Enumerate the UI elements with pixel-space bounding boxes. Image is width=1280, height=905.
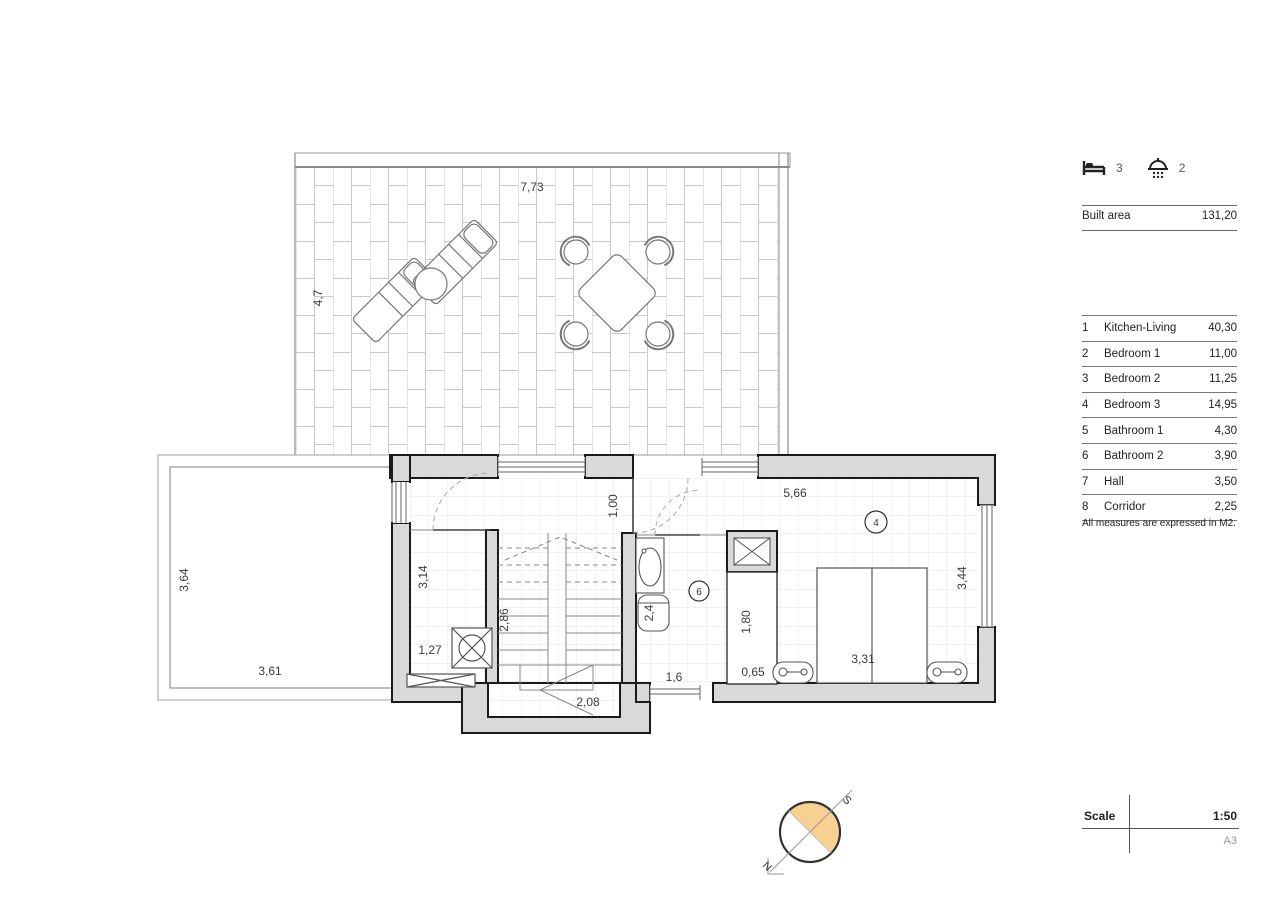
room-area: 40,30 <box>1208 322 1237 334</box>
dim-utility-depth: 3,14 <box>416 565 430 589</box>
room-num: 2 <box>1082 348 1104 360</box>
compass-north-label: N <box>760 860 774 874</box>
room-num: 7 <box>1082 476 1104 488</box>
room-name: Bathroom 2 <box>1104 450 1215 462</box>
vent-window <box>407 674 475 687</box>
shower-icon <box>1147 157 1169 179</box>
dim-stairs-landing: 2,08 <box>576 695 600 709</box>
dim-terrace-width: 7,73 <box>520 180 544 194</box>
terrace: 7,73 4,7 <box>158 153 790 455</box>
rule <box>1082 205 1237 206</box>
dim-bedroom-depth: 3,44 <box>955 566 969 590</box>
room-name: Bedroom 1 <box>1104 348 1209 360</box>
wall-top-2 <box>585 455 633 478</box>
dim-terrace-depth: 4,7 <box>311 289 325 306</box>
scale-value: 1:50 <box>1213 809 1237 823</box>
room-name: Bathroom 1 <box>1104 425 1215 437</box>
floor-plan-sheet: 7,73 4,7 3,64 3,61 <box>0 0 1280 905</box>
compass-south-label: S <box>840 794 854 808</box>
table-row: 8 Corridor 2,25 <box>1082 495 1237 521</box>
dim-utility-width: 1,27 <box>418 643 442 657</box>
table-row: 7 Hall 3,50 <box>1082 470 1237 496</box>
sink <box>636 538 664 593</box>
room-area: 3,50 <box>1215 476 1237 488</box>
nightstand <box>773 662 813 683</box>
table-row: 3 Bedroom 2 11,25 <box>1082 367 1237 393</box>
paper-size: A3 <box>1224 835 1237 847</box>
room-marker-bedroom3-num: 4 <box>873 518 879 529</box>
rule <box>1082 230 1237 231</box>
table-row: 4 Bedroom 3 14,95 <box>1082 393 1237 419</box>
rooms-table: 1 Kitchen-Living 40,30 2 Bedroom 1 11,00… <box>1082 315 1237 521</box>
wall-stairs-bath <box>622 533 636 683</box>
title-block: Scale 1:50 A3 <box>1082 795 1239 855</box>
floor-plan-drawing: 7,73 4,7 3,64 3,61 <box>0 0 1080 905</box>
room-num: 5 <box>1082 425 1104 437</box>
room-area: 3,90 <box>1215 450 1237 462</box>
washing-machine <box>452 628 492 668</box>
table-row: 6 Bathroom 2 3,90 <box>1082 444 1237 470</box>
side-table <box>415 268 447 300</box>
room-name: Hall <box>1104 476 1215 488</box>
built-area-value: 131,20 <box>1202 210 1237 222</box>
measures-note: All measures are expressed in M2. <box>1082 518 1236 529</box>
compass: S N <box>760 790 854 874</box>
wardrobe-column: 1,80 0,65 <box>727 531 777 684</box>
window-right <box>980 505 994 627</box>
room-marker-bathroom2-num: 6 <box>696 587 702 598</box>
room-name: Kitchen-Living <box>1104 322 1208 334</box>
wall-left-upper <box>392 455 410 482</box>
room-area: 2,25 <box>1215 501 1237 513</box>
room-num: 1 <box>1082 322 1104 334</box>
nightstand <box>927 662 967 683</box>
room-area: 11,25 <box>1209 373 1237 385</box>
stair-landing-floor <box>488 683 620 717</box>
room-num: 3 <box>1082 373 1104 385</box>
room-name: Bedroom 2 <box>1104 373 1209 385</box>
window-left <box>393 482 409 523</box>
window-bottom-bath <box>650 685 700 701</box>
room-num: 8 <box>1082 501 1104 513</box>
room-name: Corridor <box>1104 501 1215 513</box>
info-panel: 3 2 Built area 131,20 1 Kitchen-Living 4… <box>1082 0 1237 905</box>
built-area-row: Built area 131,20 <box>1082 210 1237 222</box>
title-block-rule <box>1082 828 1239 829</box>
dim-bed-width: 3,31 <box>851 652 875 666</box>
dim-toilet-width: 2,4 <box>642 604 656 621</box>
window-top-1 <box>498 457 585 476</box>
window-top-2 <box>702 457 758 476</box>
table-row: 2 Bedroom 1 11,00 <box>1082 342 1237 368</box>
room-area: 11,00 <box>1209 348 1237 360</box>
feature-icons: 3 2 <box>1082 155 1237 181</box>
wall-bottom-short <box>636 683 650 702</box>
room-name: Bedroom 3 <box>1104 399 1208 411</box>
table-row: 5 Bathroom 1 4,30 <box>1082 418 1237 444</box>
title-block-divider <box>1129 795 1130 853</box>
bathrooms-count: 2 <box>1179 161 1186 175</box>
room-num: 4 <box>1082 399 1104 411</box>
table-row: 1 Kitchen-Living 40,30 <box>1082 315 1237 342</box>
dim-stairs-depth: 2,86 <box>497 608 511 632</box>
bed-icon <box>1082 158 1106 178</box>
dim-bath-window: 1,6 <box>666 670 683 684</box>
dim-hall-width: 1,00 <box>606 494 620 518</box>
room-area: 14,95 <box>1208 399 1237 411</box>
scale-label: Scale <box>1084 809 1115 823</box>
room-area: 4,30 <box>1215 425 1237 437</box>
room-num: 6 <box>1082 450 1104 462</box>
bedrooms-count: 3 <box>1116 161 1123 175</box>
dim-patio-width: 3,61 <box>258 664 282 678</box>
dim-wardrobe-width: 0,65 <box>741 665 765 679</box>
dim-bedroom-width: 5,66 <box>783 486 807 500</box>
dim-wardrobe-depth: 1,80 <box>739 610 753 634</box>
dim-patio-depth: 3,64 <box>177 568 191 592</box>
built-area-label: Built area <box>1082 210 1131 222</box>
terrace-parapet <box>295 153 790 167</box>
patio: 3,64 3,61 <box>158 455 392 700</box>
